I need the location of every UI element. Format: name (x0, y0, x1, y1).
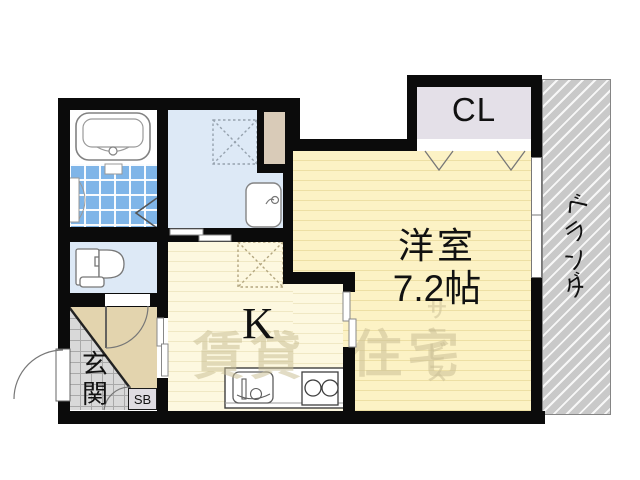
washroom-sliding-door-icon (170, 229, 231, 241)
hall-kitchen-door-icon (157, 318, 168, 376)
kitchen-label: K (235, 301, 281, 347)
western-room-label: 洋室 (358, 227, 516, 265)
entry-door-icon (14, 349, 70, 401)
entrance-label: 玄関 (80, 349, 110, 409)
kitchen-room-sliding-door-icon (343, 292, 356, 347)
closet-label: CL (417, 93, 531, 128)
western-room-size-label: 7.2帖 (358, 270, 516, 309)
floor-plan: 賃貸 住宅 サービス SB (0, 0, 640, 480)
veranda-label: ベランダ (562, 192, 590, 300)
closet-folding-door-icon (425, 151, 525, 170)
toilet-door-icon (105, 294, 150, 348)
